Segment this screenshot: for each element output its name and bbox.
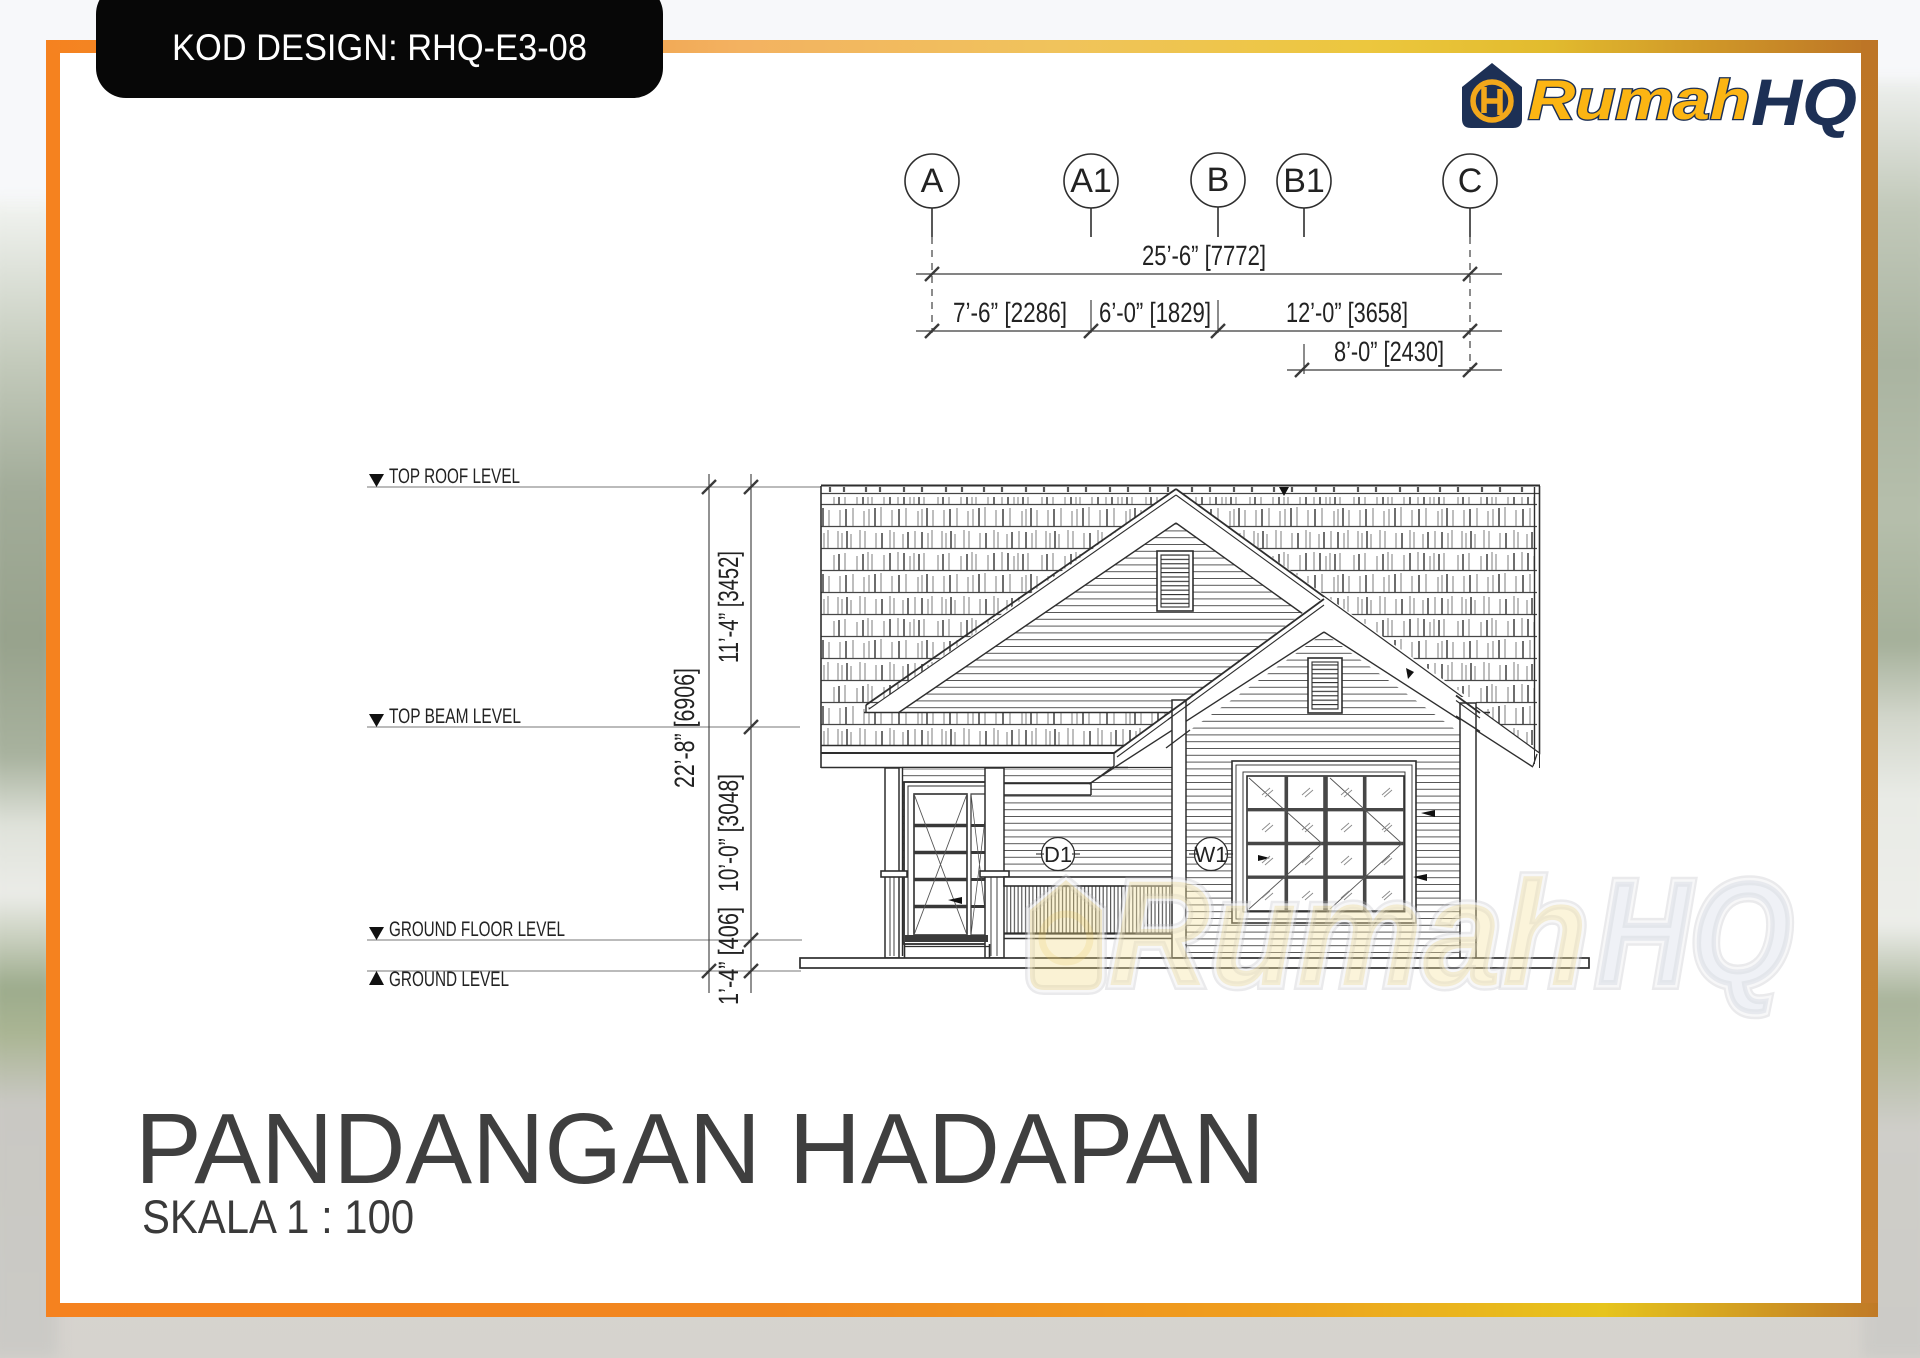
svg-text:Rumah: Rumah	[1108, 849, 1588, 1017]
svg-text:HQ: HQ	[1596, 849, 1792, 1017]
